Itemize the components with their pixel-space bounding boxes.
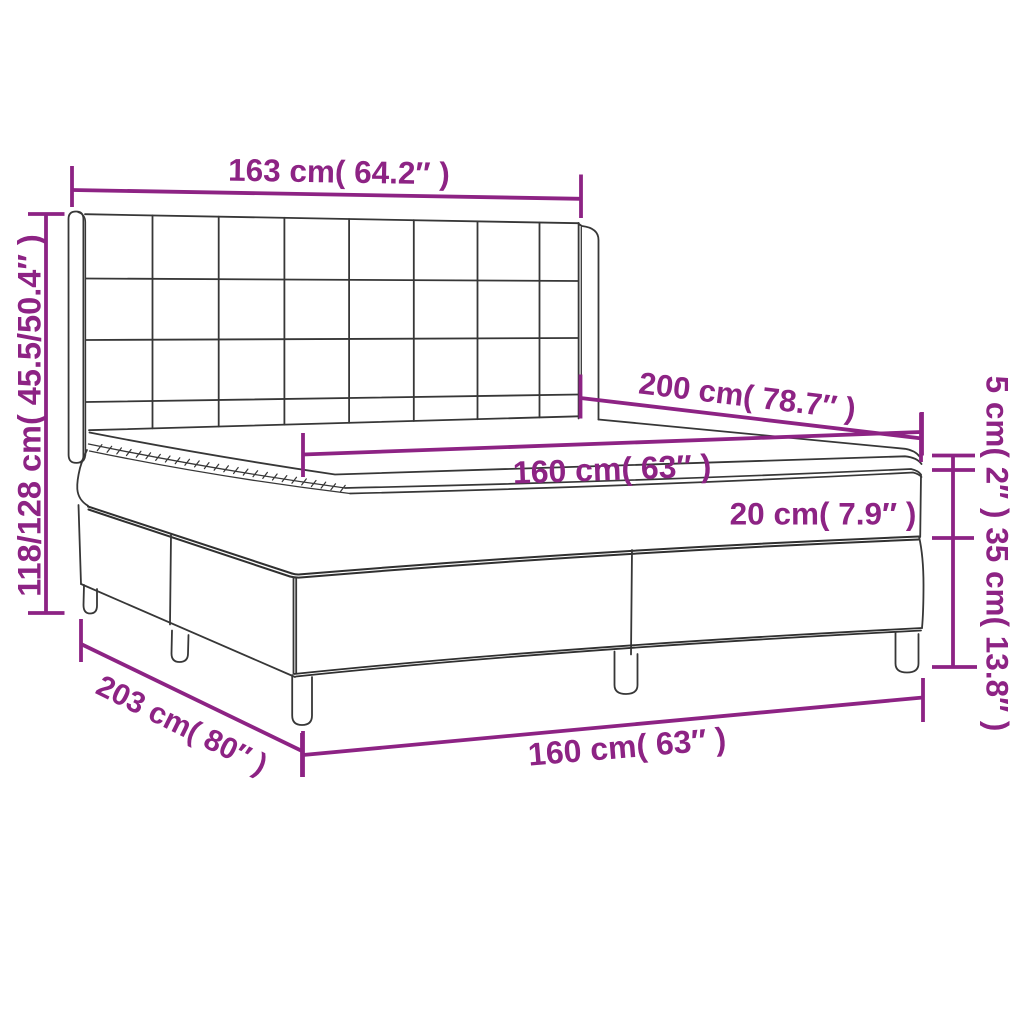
svg-text:163 cm( 64.2″ ): 163 cm( 64.2″ ) (228, 152, 450, 192)
svg-text:5 cm( 2″ ) 35 cm( 13.8″ ): 5 cm( 2″ ) 35 cm( 13.8″ ) (980, 376, 1016, 732)
svg-text:118/128 cm( 45.5/50.4″ ): 118/128 cm( 45.5/50.4″ ) (12, 234, 48, 597)
svg-text:20 cm( 7.9″ ): 20 cm( 7.9″ ) (730, 496, 917, 532)
svg-text:160 cm( 63″ ): 160 cm( 63″ ) (512, 447, 712, 490)
